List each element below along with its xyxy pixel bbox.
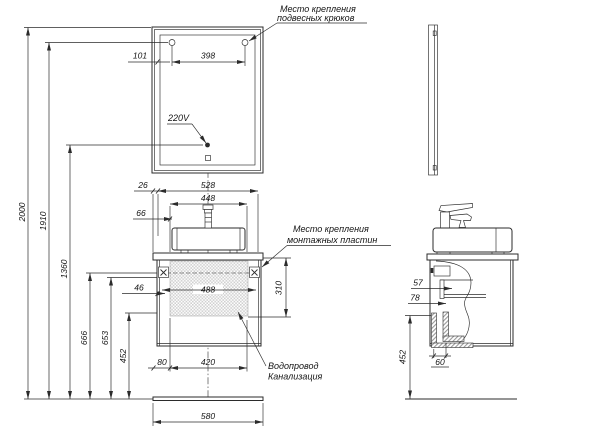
dim-488: 488 <box>201 285 215 295</box>
dim-448: 448 <box>201 193 215 203</box>
plates-label: Место крепления монтажных пластин <box>262 224 391 267</box>
hooks-label: Место крепления подвесных крюков <box>249 4 367 41</box>
mirror-side-view <box>429 25 438 175</box>
dim-78: 78 <box>410 293 420 303</box>
dim-398: 398 <box>201 51 215 61</box>
outlet-label-text: 220V <box>167 113 190 123</box>
countertop-plan <box>153 397 263 401</box>
countertop-front <box>153 253 263 260</box>
dim-580: 580 <box>201 411 215 421</box>
dim-1360: 1360 <box>59 259 69 278</box>
cabinet-side-view <box>427 204 518 348</box>
mirror-front-view <box>152 27 263 173</box>
plumbing-label-line1: Водопровод <box>268 361 318 371</box>
hanging-hook-right <box>242 40 248 46</box>
faucet-front <box>203 205 213 228</box>
hooks-label-line2: подвесных крюков <box>277 13 355 23</box>
dim-2000: 2000 <box>17 202 27 222</box>
installation-drawing-canvas: Место крепления подвесных крюков 101 398… <box>0 0 612 433</box>
countertop-side <box>427 254 518 260</box>
dim-452-front: 452 <box>118 349 128 363</box>
mounting-plate-right <box>250 267 260 278</box>
faucet-side <box>439 204 473 229</box>
dim-66: 66 <box>136 208 146 218</box>
dim-60: 60 <box>435 357 445 367</box>
dim-80: 80 <box>157 357 167 367</box>
cabinet-front-view: 488 46 <box>122 253 263 346</box>
dim-528: 528 <box>201 180 215 190</box>
dim-26: 26 <box>137 180 148 190</box>
side-plate-top <box>434 266 450 276</box>
sink-front-view <box>172 205 245 253</box>
plinth-section <box>432 343 474 348</box>
plates-label-line1: Место крепления <box>293 224 369 234</box>
technical-drawing-page: Место крепления подвесных крюков 101 398… <box>0 0 612 433</box>
dim-653: 653 <box>100 331 110 345</box>
plates-label-line2: монтажных пластин <box>287 235 377 245</box>
plumbing-label-line2: Канализация <box>268 372 322 382</box>
dim-666: 666 <box>79 331 89 345</box>
dim-420: 420 <box>201 357 215 367</box>
dim-1910: 1910 <box>38 211 48 230</box>
hanging-hook-left <box>169 40 175 46</box>
dim-46: 46 <box>134 283 144 293</box>
dim-57: 57 <box>413 278 423 288</box>
dim-452-side: 452 <box>398 350 408 364</box>
sink-side <box>433 228 512 252</box>
mounting-plate-left <box>159 267 169 278</box>
outlet-point <box>205 143 210 148</box>
dim-101: 101 <box>133 51 147 61</box>
dim-310: 310 <box>274 281 284 295</box>
door-section <box>432 313 437 344</box>
